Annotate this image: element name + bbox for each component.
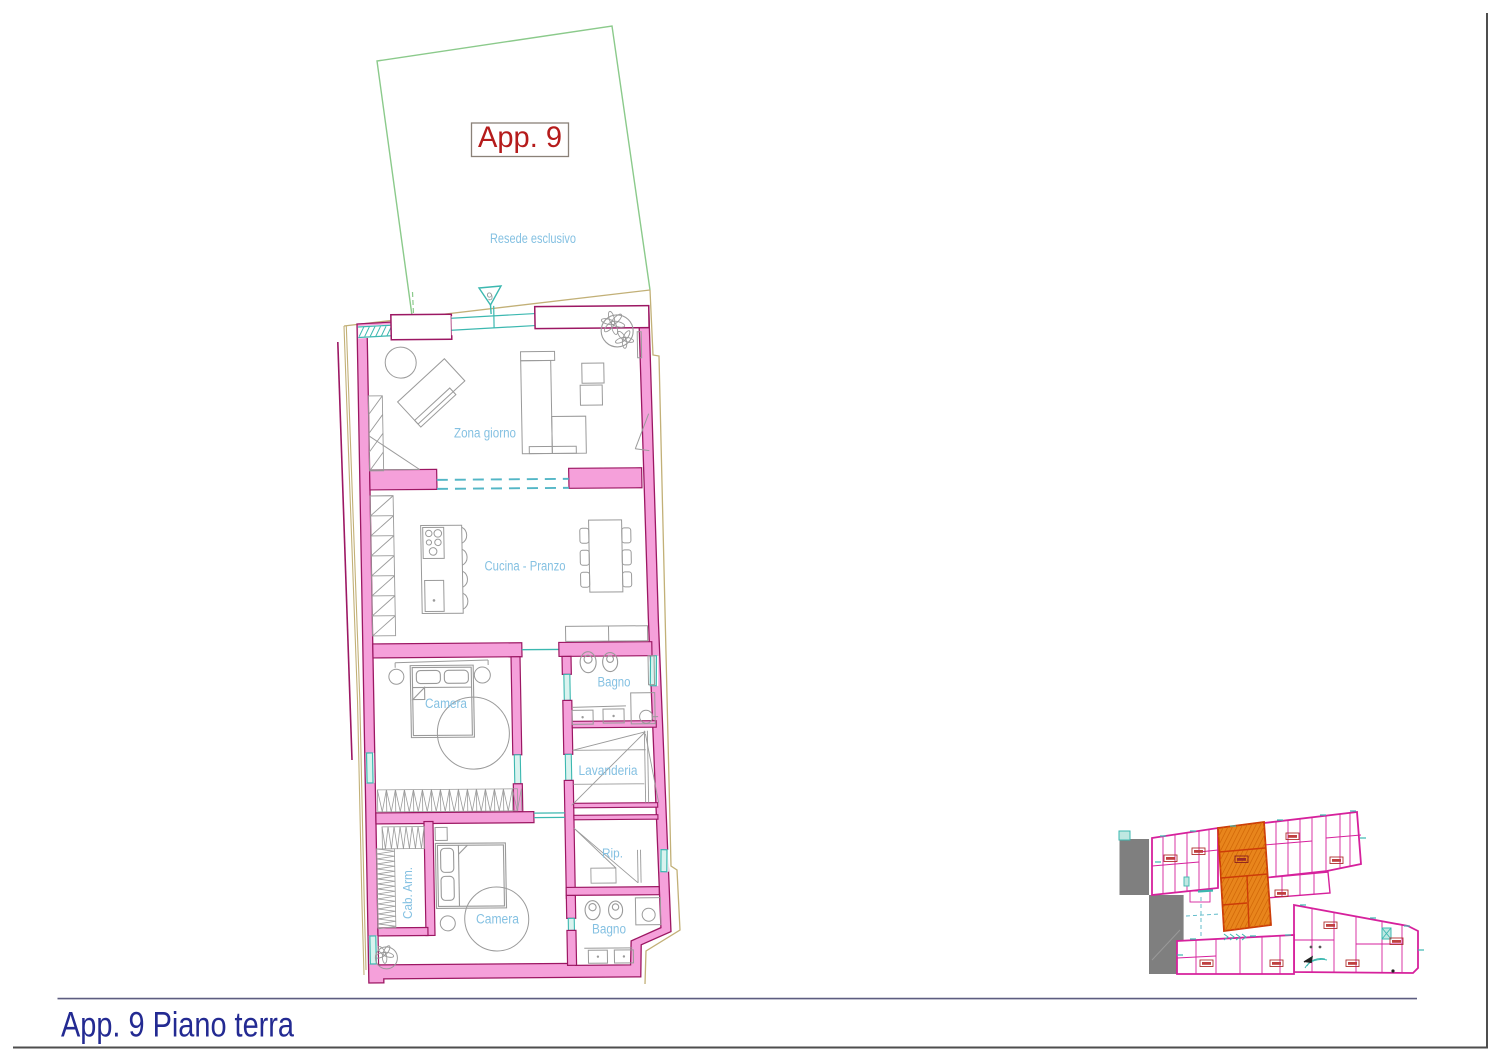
svg-text:Rip.: Rip. xyxy=(602,847,623,861)
svg-text:Bagno: Bagno xyxy=(598,675,631,690)
svg-text:Cab. Arm.: Cab. Arm. xyxy=(401,867,415,919)
svg-text:App. 9 Piano terra: App. 9 Piano terra xyxy=(61,1006,294,1045)
svg-text:App. 9: App. 9 xyxy=(478,121,562,154)
svg-text:Lavanderia: Lavanderia xyxy=(579,763,638,778)
svg-text:Zona giorno: Zona giorno xyxy=(454,426,516,441)
svg-text:Camera: Camera xyxy=(425,696,467,711)
svg-text:Camera: Camera xyxy=(476,912,519,927)
svg-text:Cucina - Pranzo: Cucina - Pranzo xyxy=(485,559,566,574)
svg-text:Bagno: Bagno xyxy=(592,922,626,937)
svg-text:Resede esclusivo: Resede esclusivo xyxy=(490,231,576,246)
